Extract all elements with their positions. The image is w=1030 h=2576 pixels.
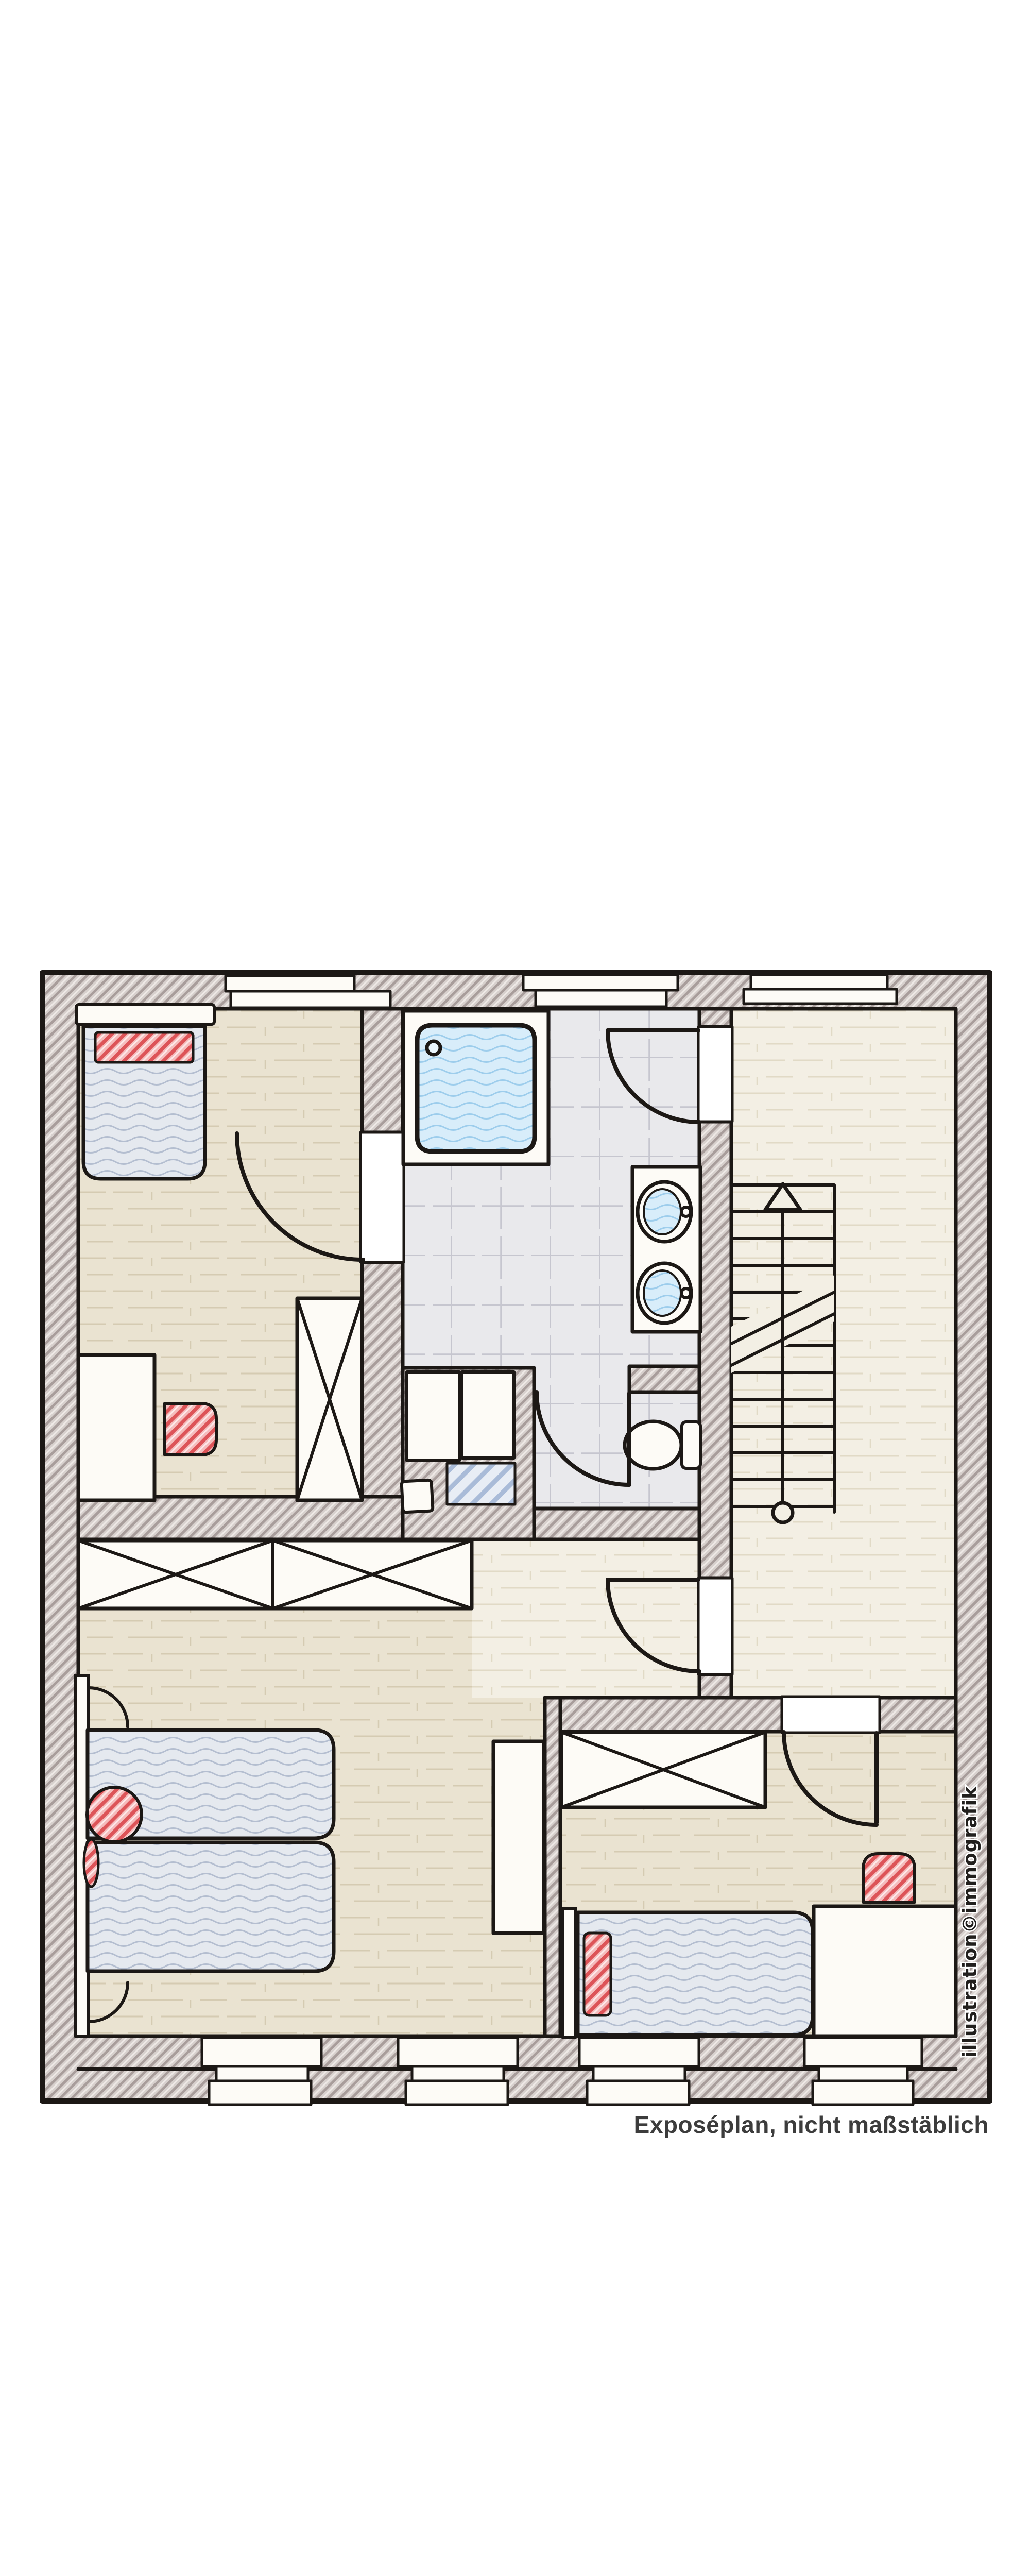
dryer	[462, 1372, 514, 1458]
sink-faucet	[681, 1289, 691, 1298]
bed-headboard	[76, 1005, 214, 1024]
page: Exposéplan, nicht maßstäblich illustrati…	[0, 0, 1030, 2576]
desk	[78, 1355, 154, 1500]
toilet-tank	[682, 1422, 700, 1468]
shower-drain	[427, 1041, 440, 1055]
window-bottom-4	[804, 2038, 922, 2105]
room-hallway	[472, 1539, 699, 1698]
watermark: illustration©immografik	[959, 1786, 981, 2058]
cabinet	[493, 1741, 544, 1933]
desk	[814, 1906, 956, 2036]
window-top-2	[523, 975, 678, 1007]
bed-pillow	[84, 1839, 98, 1887]
hallway-furniture	[78, 1540, 472, 1608]
double-bed-mattress	[88, 1842, 334, 1971]
single-bed	[578, 1912, 813, 2035]
bed-pillow	[95, 1032, 193, 1062]
bed-pillow	[87, 1787, 142, 1842]
hall-wardrobe	[78, 1540, 472, 1608]
floor-plan: Exposéplan, nicht maßstäblich illustrati…	[0, 0, 1030, 2576]
stair-newel	[773, 1503, 793, 1522]
bed-headboard	[562, 1908, 576, 2037]
stool	[401, 1480, 433, 1513]
sink-faucet	[681, 1207, 691, 1216]
window-bottom-2	[398, 2038, 518, 2105]
window-top-3	[744, 975, 897, 1004]
washing-machine	[407, 1372, 459, 1461]
chair	[165, 1403, 216, 1455]
chair	[863, 1854, 915, 1902]
caption: Exposéplan, nicht maßstäblich	[634, 2111, 989, 2138]
toilet-bowl	[625, 1421, 681, 1469]
bed-pillow	[584, 1933, 611, 2015]
window-bottom-3	[579, 2038, 699, 2105]
bath-mat	[447, 1463, 515, 1504]
window-bottom-1	[202, 2038, 321, 2105]
